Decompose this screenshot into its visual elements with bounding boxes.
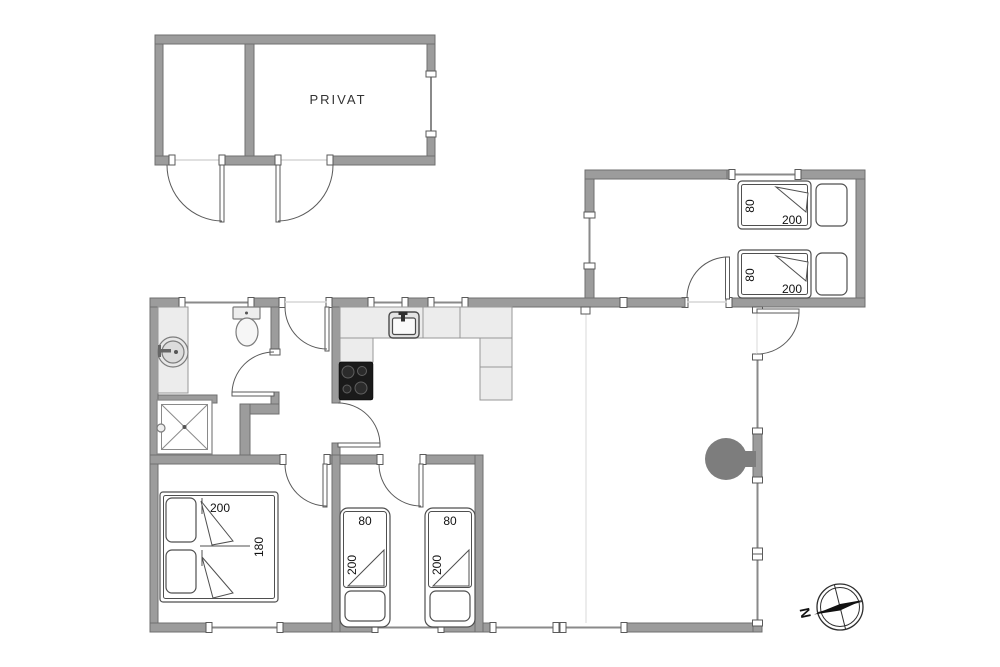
double-bed: 200 180 [160, 492, 278, 602]
bed-width-label: 80 [743, 268, 757, 282]
window-frame [426, 131, 436, 137]
bed-width-label: 80 [443, 514, 457, 528]
window-frame [368, 298, 374, 308]
wall [155, 44, 163, 156]
kitchen-counter [340, 307, 512, 338]
single-bed-1: 80 200 [340, 508, 390, 627]
window-frame [553, 623, 559, 633]
bed-pillow [430, 591, 470, 621]
bed-length-label: 200 [345, 555, 359, 575]
wall [727, 298, 865, 307]
bed-pillow [166, 550, 196, 593]
bed-width-label: 80 [743, 199, 757, 213]
window-frame [462, 298, 468, 308]
toilet-bowl-icon [236, 318, 258, 346]
stove-burner [358, 367, 367, 376]
wall-junction [620, 298, 627, 308]
door-swing [687, 257, 728, 298]
entrance-door-swing [285, 307, 327, 349]
privat-building: PRIVAT [155, 35, 436, 222]
kitchen-counter [340, 338, 373, 362]
door-leaf [726, 257, 730, 299]
window-frame [621, 623, 627, 633]
door-swing [167, 165, 222, 221]
window-frame [426, 71, 436, 77]
wall [150, 298, 158, 632]
door-frame [324, 455, 330, 465]
patio-door-swing [757, 312, 799, 354]
window-frame [428, 298, 434, 308]
window-frame [753, 477, 763, 483]
bed-width-label: 80 [358, 514, 372, 528]
wall-divider [245, 44, 254, 156]
door-frame [327, 155, 333, 165]
wall [462, 298, 685, 307]
window-frame [753, 620, 763, 626]
master-door-leaf [323, 464, 327, 507]
wall [155, 35, 435, 44]
wall [627, 623, 762, 632]
window-frame [248, 298, 254, 308]
door-swing [278, 165, 333, 221]
window-frame [206, 623, 212, 633]
bed-width-label: 180 [252, 537, 266, 557]
wall [585, 269, 594, 298]
window-frame [753, 554, 763, 560]
sink-tap-icon [158, 345, 161, 357]
compass-north-label: N [796, 606, 814, 619]
window-frame [179, 298, 185, 308]
window-frame [490, 623, 496, 633]
kitchen-counter [480, 338, 512, 400]
door-frame [219, 155, 225, 165]
door-frame [279, 298, 285, 308]
wall [271, 307, 279, 351]
room-label-privat: PRIVAT [309, 92, 366, 107]
wall [327, 298, 374, 307]
single-bed-2: 80 200 [425, 508, 475, 627]
bed-pillow [816, 253, 847, 295]
bed-pillow [816, 184, 847, 226]
window-frame [584, 212, 595, 218]
door-frame [275, 155, 281, 165]
bathroom-door-swing [232, 352, 274, 394]
single-room-door-swing [379, 464, 421, 506]
floor-plan: PRIVAT 80 200 [0, 0, 1000, 667]
annex-bed-2: 80 200 [738, 250, 847, 298]
door-frame [377, 455, 383, 465]
bedrooms: 200 180 80 200 80 200 [150, 455, 483, 633]
bed-pillow [166, 498, 196, 542]
door-leaf [220, 165, 224, 222]
wall [328, 156, 435, 165]
window-frame [753, 428, 763, 434]
kitchen-door-swing [338, 403, 380, 445]
compass-rose: N [796, 584, 863, 630]
stove-burner [342, 366, 354, 378]
window-frame [729, 170, 735, 180]
bed-length-label: 200 [210, 501, 230, 515]
window-frame [584, 263, 595, 269]
wall [250, 404, 279, 414]
wall [150, 623, 206, 632]
sink-drain [174, 350, 178, 354]
shower-drain [183, 425, 187, 429]
wall [240, 404, 250, 455]
annex-bed-1: 80 200 [738, 181, 847, 229]
wall [585, 170, 727, 179]
door-frame [280, 455, 286, 465]
shower-valve-icon [157, 424, 165, 432]
fireplace-flue [736, 451, 756, 467]
kitchen [332, 307, 512, 455]
master-door-swing [285, 464, 327, 506]
window-frame [277, 623, 283, 633]
wall-divider [332, 455, 340, 632]
kitchen-tap-icon [399, 312, 408, 316]
bathroom-door-leaf [232, 392, 274, 396]
wall [222, 156, 278, 165]
annex: 80 200 80 200 [584, 170, 865, 308]
window-frame [795, 170, 801, 180]
wall [585, 179, 594, 213]
wall [427, 44, 435, 72]
fireplace [705, 438, 756, 480]
stove-burner [343, 385, 351, 393]
toilet-button [245, 312, 248, 315]
wall [856, 179, 865, 307]
window-frame [753, 548, 763, 554]
wall-divider [475, 455, 483, 632]
bed-length-label: 200 [782, 213, 802, 227]
bed-length-label: 200 [430, 555, 444, 575]
wall [421, 455, 483, 464]
wall [801, 170, 865, 179]
window-frame [753, 354, 763, 360]
wall [427, 136, 435, 156]
window-frame [402, 298, 408, 308]
wall [150, 455, 283, 464]
bathroom [157, 307, 280, 455]
kitchen-door-leaf [338, 443, 380, 447]
shower [157, 400, 212, 454]
patio-door-leaf [757, 309, 799, 313]
stove-burner [355, 382, 367, 394]
bed-pillow [345, 591, 385, 621]
entrance-door-leaf [325, 307, 329, 351]
single-room-door-leaf [419, 464, 423, 507]
door-leaf [276, 165, 280, 222]
door-frame [420, 455, 426, 465]
wall-junction [581, 307, 590, 314]
window-frame [560, 623, 566, 633]
bed-length-label: 200 [782, 282, 802, 296]
door-frame [169, 155, 175, 165]
